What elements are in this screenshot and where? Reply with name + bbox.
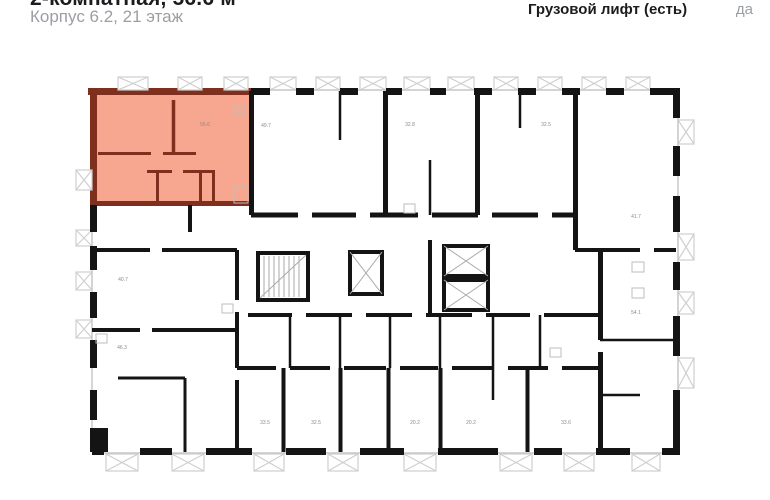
unit-area-label: 33.5 — [260, 420, 270, 426]
unit-area-label: 40.7 — [118, 277, 128, 283]
unit-area-label: 33.6 — [561, 420, 571, 426]
unit-area-label: 41.7 — [631, 214, 641, 220]
unit-area-label: 54.1 — [631, 310, 641, 316]
unit-area-label: 32.8 — [405, 122, 415, 128]
elevator-shaft-large-1 — [444, 246, 488, 276]
unit-area-label: 32.5 — [311, 420, 321, 426]
balcony-row-bottom — [106, 454, 660, 471]
balcony-col-right — [678, 120, 694, 388]
highlighted-unit[interactable] — [88, 88, 251, 205]
unit-area-label: 49.7 — [261, 123, 271, 129]
unit-area-label: 46.3 — [117, 345, 127, 351]
unit-area-label: 32.5 — [541, 122, 551, 128]
unit-area-label: 20.2 — [410, 420, 420, 426]
unit-area-label: 20.2 — [466, 420, 476, 426]
highlighted-unit-area-label: 56.6 — [200, 122, 210, 128]
balcony-col-left — [76, 170, 92, 338]
elevator-shafts — [350, 246, 488, 310]
staircase — [258, 253, 308, 300]
floorplan-svg: 56.649.732.832.541.740.754.146.333.532.5… — [0, 0, 770, 500]
elevator-shaft-small — [350, 252, 382, 294]
elevator-shaft-large-2 — [444, 280, 488, 310]
